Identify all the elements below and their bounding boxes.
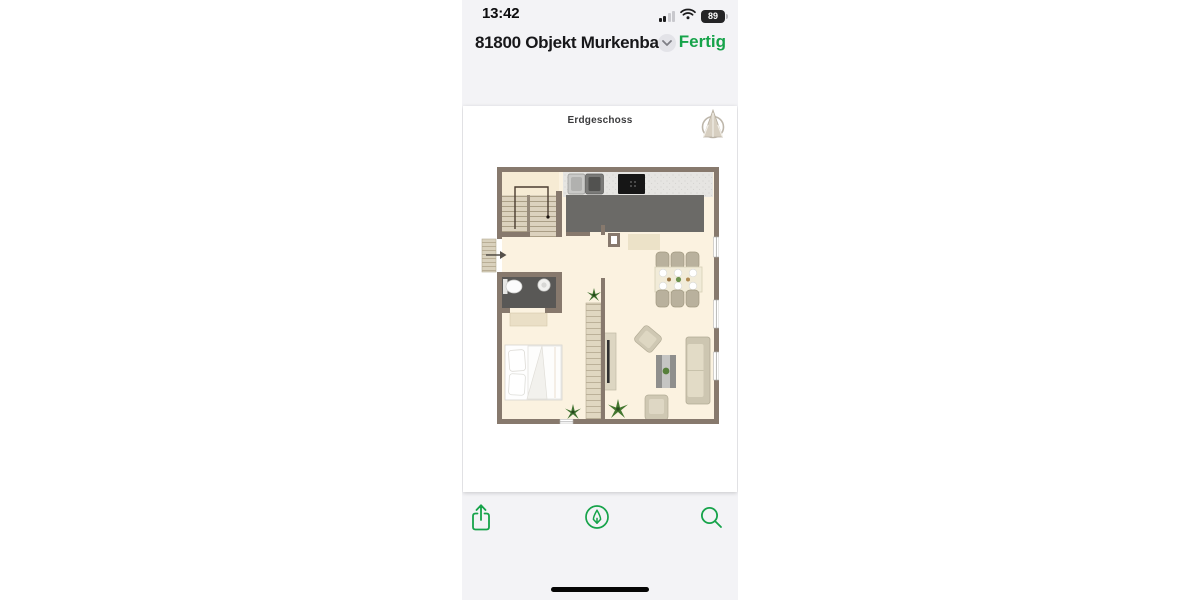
- markup-button[interactable]: [582, 502, 612, 532]
- kitchen-sink-icon: [568, 174, 604, 194]
- floor-plan-drawing: [481, 167, 719, 429]
- status-time: 13:42: [482, 5, 519, 22]
- title-menu-button[interactable]: [658, 34, 676, 52]
- kitchen-island: [566, 195, 704, 232]
- wardrobe: [586, 303, 601, 419]
- document-title-button[interactable]: 81800 Objekt Murkenba...: [475, 33, 676, 53]
- bed: [505, 345, 562, 400]
- dining-set: [655, 252, 702, 307]
- markup-pen-icon: [584, 504, 610, 530]
- dining-chairs-top: [656, 252, 699, 269]
- bottom-toolbar: [462, 492, 738, 600]
- table-plant: [676, 277, 681, 282]
- done-button[interactable]: Fertig: [679, 32, 726, 52]
- document-title: 81800 Objekt Murkenba...: [475, 33, 651, 53]
- sofa: [686, 337, 710, 404]
- dining-chairs-bottom: [656, 290, 699, 307]
- chevron-down-icon: [662, 40, 672, 46]
- battery-percent-text: 89: [708, 11, 718, 21]
- phone-screen: 13:42 89: [462, 0, 738, 600]
- architect-logo-icon: [700, 109, 726, 146]
- toilet: [506, 280, 522, 293]
- floor-plan-title: Erdgeschoss: [463, 115, 737, 126]
- battery-icon: 89: [701, 10, 725, 23]
- nav-bar: 81800 Objekt Murkenba... Fertig: [462, 30, 738, 60]
- document-page[interactable]: Erdgeschoss: [463, 106, 737, 492]
- battery-nub: [726, 14, 728, 19]
- share-icon: [469, 503, 493, 532]
- status-icons: 89: [659, 7, 726, 25]
- tv: [607, 340, 610, 383]
- status-bar: 13:42 89: [462, 0, 738, 28]
- search-button[interactable]: [696, 502, 726, 532]
- home-indicator[interactable]: [551, 587, 649, 592]
- coffee-table: [656, 355, 676, 388]
- search-icon: [699, 505, 724, 530]
- screenshot-canvas: 13:42 89: [0, 0, 1200, 600]
- wifi-icon: [680, 7, 696, 25]
- bath-mat: [510, 313, 547, 326]
- pillow: [508, 349, 525, 371]
- kitchen-rug: [628, 234, 660, 250]
- armchair: [645, 395, 668, 420]
- share-button[interactable]: [466, 502, 496, 532]
- cellular-signal-icon: [659, 11, 676, 22]
- coffee-table-plant: [663, 368, 670, 375]
- column-core: [611, 236, 617, 244]
- pillow: [508, 374, 525, 396]
- cooktop-icon: [618, 174, 645, 194]
